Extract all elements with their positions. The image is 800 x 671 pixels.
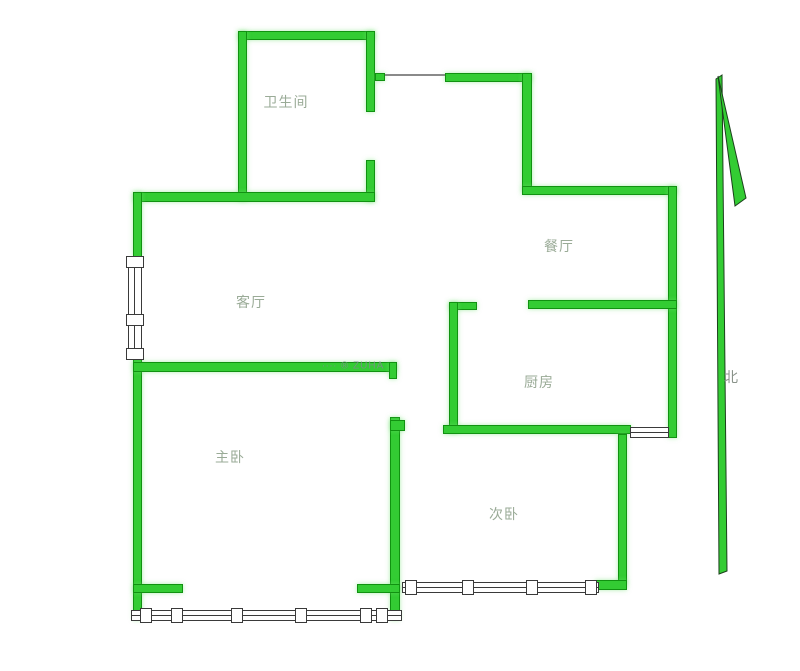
- room-label-kitchen: 厨房: [524, 372, 554, 392]
- bedroom2-bay-window-pane-line: [403, 587, 598, 588]
- living-room-window: [128, 256, 142, 360]
- west-exterior-wall-upper: [133, 192, 142, 257]
- bedroom2-south-wall: [595, 580, 627, 590]
- kitchen-west-wall: [449, 302, 458, 433]
- bedroom2-bay-window: [402, 582, 599, 593]
- bedroom1-bay-window-mullion: [140, 608, 152, 623]
- bedroom1-bay-window-mullion: [231, 608, 243, 623]
- room-label-living-room: 客厅: [236, 292, 266, 312]
- north-arrow-icon: [0, 0, 800, 671]
- bedroom1-bay-window-mullion: [360, 608, 372, 623]
- bedroom2-bay-window-mullion: [585, 580, 597, 595]
- north-arrow-barb: [718, 76, 746, 206]
- north-arrow-shaft: [716, 75, 727, 574]
- east-exterior-wall: [668, 186, 677, 438]
- watermark: ∙∙∙∙ ® ZUHA: [322, 361, 384, 372]
- room-label-second-bedroom: 次卧: [489, 504, 519, 524]
- bedroom1-bay-window-mullion: [376, 608, 388, 623]
- bedroom1-south-stub-right: [357, 584, 400, 593]
- bathroom-door-stub: [375, 73, 385, 81]
- bedroom2-bay-window-mullion: [526, 580, 538, 595]
- bedroom1-south-stub-left: [133, 584, 183, 593]
- bedroom2-north-wall: [443, 425, 631, 434]
- dining-north-wall: [522, 186, 677, 195]
- bedroom1-bay-window-mullion: [171, 608, 183, 623]
- dining-west-wall: [522, 73, 532, 191]
- living-room-window-mullion: [126, 348, 144, 360]
- bedroom1-bay-window-mullion: [295, 608, 307, 623]
- room-label-bathroom: 卫生间: [264, 92, 309, 112]
- west-exterior-wall-lower: [133, 358, 142, 620]
- bathroom-west-wall: [238, 31, 247, 201]
- entry-north-wall: [445, 73, 532, 82]
- kitchen-window: [630, 427, 669, 438]
- bathroom-north-wall: [238, 31, 375, 40]
- bedroom2-east-wall: [618, 434, 627, 584]
- living-room-window-mullion: [126, 256, 144, 268]
- kitchen-window-pane-line: [631, 432, 668, 433]
- north-label: 北: [724, 367, 738, 387]
- floor-plan: 卫生间 餐厅 客厅 厨房 主卧 次卧 北 ∙∙∙∙ ® ZUHA: [0, 0, 800, 671]
- living-north-wall: [133, 192, 375, 202]
- entry-door-header: [385, 74, 445, 76]
- living-room-window-pane-line: [134, 257, 135, 359]
- living-south-hook: [389, 362, 397, 379]
- bedroom2-bay-window-mullion: [462, 580, 474, 595]
- kitchen-north-wall: [528, 300, 677, 309]
- room-label-master-bedroom: 主卧: [215, 447, 245, 467]
- room-label-dining-room: 餐厅: [544, 236, 574, 256]
- bathroom-east-wall-upper: [366, 31, 375, 112]
- living-room-window-mullion: [126, 314, 144, 326]
- bedroom-divider-hook: [390, 420, 405, 431]
- bedroom2-bay-window-mullion: [405, 580, 417, 595]
